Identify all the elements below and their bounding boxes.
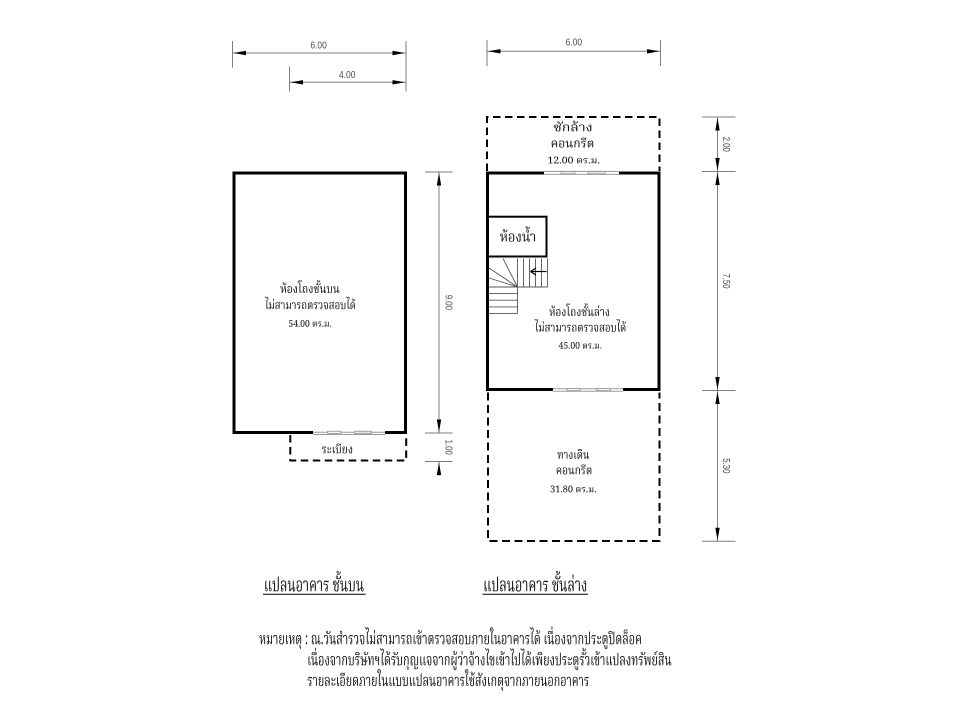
svg-text:4.00: 4.00: [339, 70, 356, 81]
svg-text:9.00: 9.00: [443, 295, 454, 311]
svg-text:7.50: 7.50: [720, 273, 731, 289]
svg-text:5.30: 5.30: [720, 458, 731, 474]
svg-text:2.00: 2.00: [720, 137, 731, 153]
svg-text:1.00: 1.00: [443, 440, 454, 456]
svg-text:6.00: 6.00: [310, 40, 327, 51]
svg-text:6.00: 6.00: [566, 38, 583, 49]
